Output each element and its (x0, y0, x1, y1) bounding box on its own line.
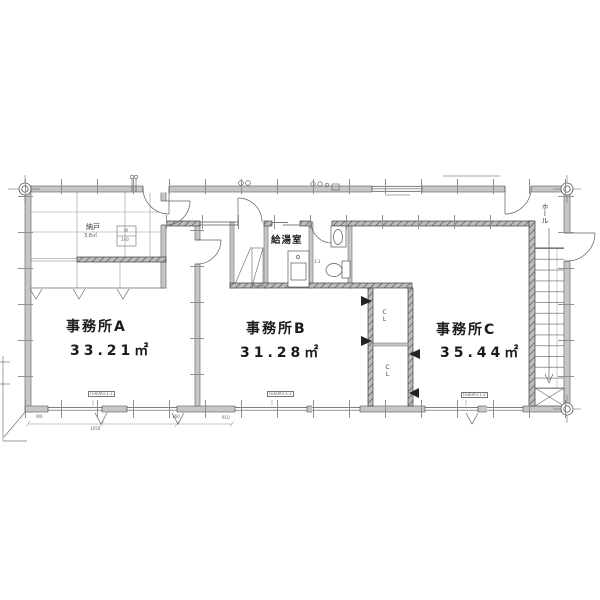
hall-label: ホール (541, 203, 548, 224)
office-c-name-label: 事務所C (436, 323, 496, 337)
floor-plan-canvas: 事務所A 33.21㎡ 事務所B 31.28㎡ 事務所C 35.44㎡ 給湯室 … (0, 0, 600, 600)
exterior-walls (25, 186, 570, 412)
storage-box-top-label: W (124, 229, 128, 233)
office-c-area-label: 35.44㎡ (440, 346, 522, 360)
dimension-lines (26, 400, 466, 427)
office-b-name-label: 事務所B (246, 322, 307, 336)
dim-label-1: W6 (36, 415, 43, 419)
office-a-name-label: 事務所A (66, 320, 127, 334)
wc-fixtures (326, 226, 350, 278)
closet-lower-label: CL (384, 364, 390, 378)
floor-plan-drawing (0, 0, 600, 600)
wall-openings (48, 186, 571, 413)
window-tag-b: FE60A×1-3 (267, 391, 294, 397)
dim-label-2: 1650 (90, 427, 100, 431)
kitchenette-label: 給湯室 (271, 236, 303, 246)
kitchenette-fixtures (288, 251, 309, 287)
stairs (535, 228, 564, 406)
dim-label-3: 160 (172, 415, 180, 419)
interior-walls (77, 188, 535, 406)
storage-area-label: 3.8㎡ (84, 234, 97, 239)
exterior-stair (0, 356, 27, 441)
closet-upper-label: CL (381, 309, 387, 323)
wc-area-label: 3.3 (314, 260, 320, 264)
office-a-area-label: 33.21㎡ (70, 344, 152, 358)
office-b-area-label: 31.28㎡ (240, 346, 322, 360)
storage-fixtures (117, 226, 263, 286)
storage-name-label: 納戸 (86, 224, 100, 231)
grid-lines (28, 192, 166, 288)
window-tag-a: FE60A×1-3 (88, 391, 115, 397)
storage-box-bottom-label: 240 (121, 238, 129, 242)
dim-label-4: 910 (222, 416, 230, 420)
window-tag-c: FE60A×1-3 (461, 392, 488, 398)
